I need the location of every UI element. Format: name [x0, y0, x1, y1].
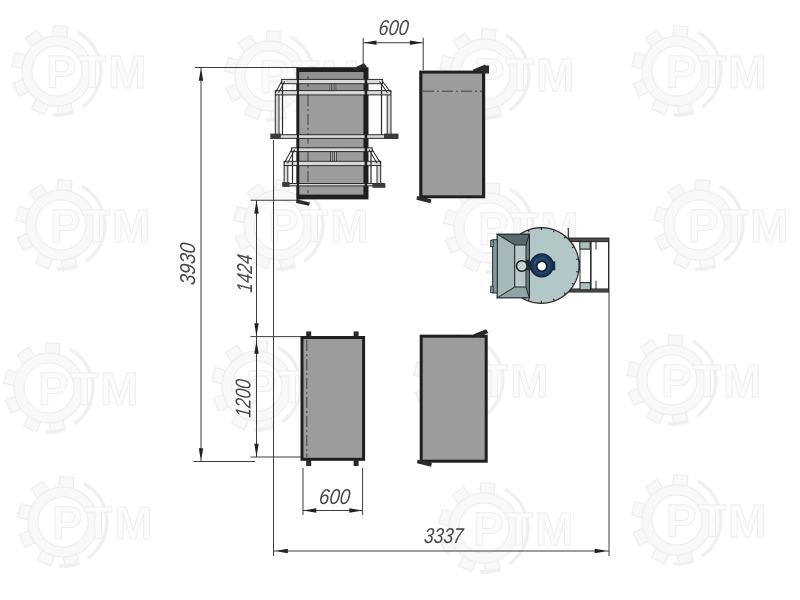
svg-text:600: 600 — [318, 484, 352, 509]
svg-text:600: 600 — [377, 15, 410, 40]
svg-text:3337: 3337 — [423, 523, 465, 548]
svg-text:1200: 1200 — [231, 378, 256, 419]
svg-text:1424: 1424 — [232, 253, 257, 294]
svg-text:3930: 3930 — [175, 241, 200, 286]
